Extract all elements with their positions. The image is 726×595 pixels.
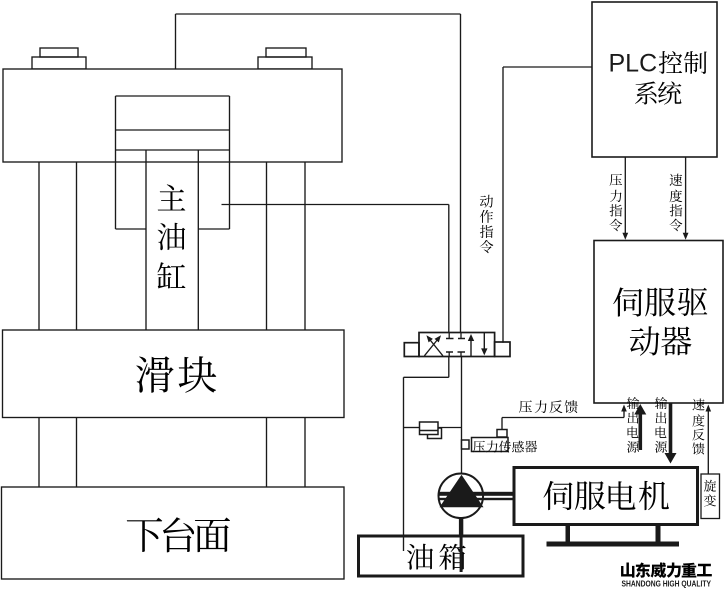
svg-text:PLC: PLC <box>609 50 658 78</box>
svg-text:SHANDONG HIGH QUALITY: SHANDONG HIGH QUALITY <box>622 579 712 588</box>
